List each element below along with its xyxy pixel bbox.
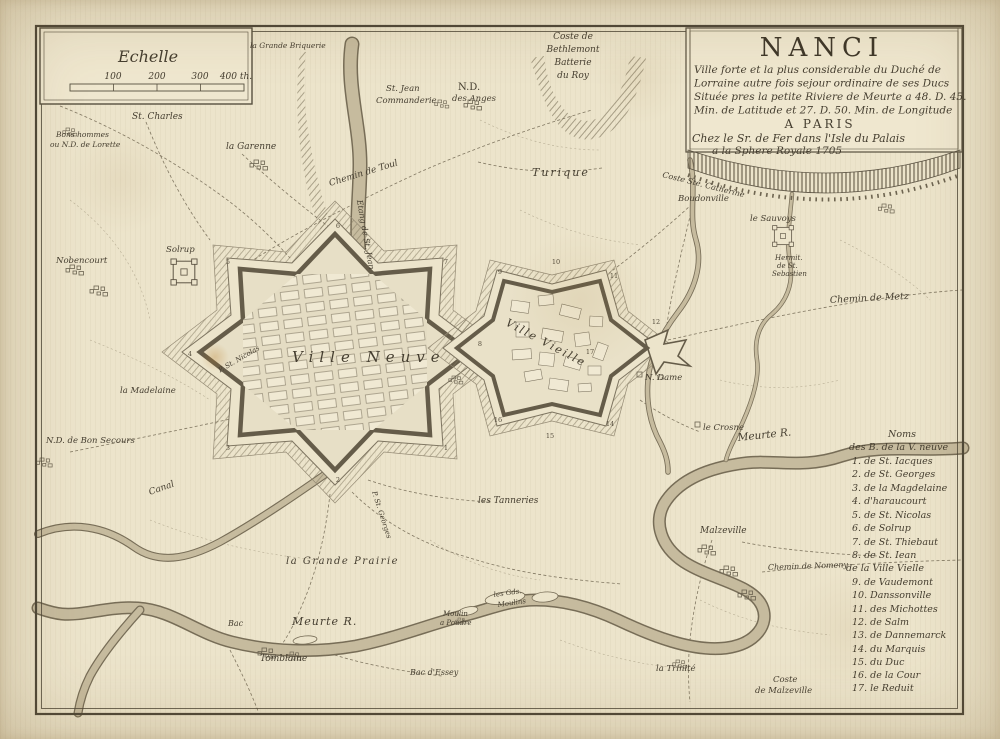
scale-tick-300: 300 [191,72,208,82]
label-malzeville: Malzeville [699,526,747,536]
scale-tick-100: 100 [104,72,121,82]
list-item: 12. de Salm [852,617,909,628]
list-item: 4. d'haraucourt [851,496,927,507]
list-item: 15. du Duc [852,657,905,668]
label-solrup: Solrup [166,245,195,255]
list-header-1: Noms [887,429,916,440]
bastion-number: 17 [586,348,594,356]
cartouche-date: a la Sphere Royale 1705 [712,145,842,157]
scale-tick-200: 200 [147,72,165,82]
fort-sauvoys [773,226,794,247]
label-tomblaine: Tomblaine [260,654,307,664]
bastion-number: 2 [336,476,340,484]
list-item: 3. de la Magdelaine [852,483,948,494]
label-coste-malzeville-1: Coste [773,675,797,685]
cartouche-line2: Lorraine autre fois sejour ordinaire de … [693,78,950,90]
label-ville-neuve: Ville Neuve [292,348,446,366]
label-moulin-poudre-2: a Poudre [440,619,472,627]
map-engraving: Echelle 100 200 300 400 th. NANCI Ville … [0,0,1000,739]
bastion-number: 1 [444,444,448,452]
cartouche-line3: Située pres la petite Riviere de Meurte … [694,91,966,103]
label-garenne: la Garenne [226,142,276,152]
bastion-number: 16 [494,416,502,424]
label-bonshommes-1: Bons hommes [55,130,109,139]
label-meurte-e: Meurte R. [736,426,792,444]
bastion-number: 6 [336,222,340,230]
bastion-number: 14 [606,420,614,428]
label-boudonville: Boudonville [677,194,729,204]
bastion-number: 10 [552,258,560,266]
list-item: 6. de Solrup [852,523,911,534]
label-madelaine: la Madelaine [120,386,176,396]
list-item: 9. de Vaudemont [852,577,933,588]
river-island [293,635,318,645]
label-coste-malzeville-2: de Malzeville [755,686,812,696]
bastion-number: 9 [498,268,502,276]
list-item: 7. de St. Thiebaut [852,537,938,548]
list-item: 16. de la Cour [852,670,922,681]
cartouche-line4: Min. de Latitude et 27. D. 50. Min. de L… [693,105,952,117]
label-st-charles: St. Charles [132,112,183,122]
label-bac: Bac [227,619,244,628]
label-grande-briquerie: la Grande Briquerie [250,41,326,50]
cartouche-imprint-city: A PARIS [783,117,855,131]
scale-title: Echelle [117,47,178,66]
label-bac-essey: Bac d'Essey [409,668,459,677]
map-title: NANCI [760,33,884,63]
list-item: 11. des Michottes [852,604,938,615]
crosne-chapel [695,422,700,427]
bastion-number: 12 [652,318,660,326]
bastion-number: 4 [188,350,192,358]
list-item: 14. du Marquis [852,644,926,655]
list-item: 1. de St. Iacques [852,456,933,467]
label-meurte-sw: Meurte R. [291,615,357,628]
bastion-number: 7 [444,258,448,266]
list-item: 17. le Reduit [852,683,914,694]
coste-bethlemont-hill [530,56,646,140]
label-bonshommes-2: ou N.D. de Lorette [50,140,121,149]
label-hermitage-3: Sebastien [772,270,807,278]
bastion-list: Noms des B. de la V. neuve 1. de St. Iac… [846,429,949,694]
label-st-jean-1: St. Jean [386,84,420,94]
list-item: 5. de St. Nicolas [852,510,931,521]
scale-tick-400: 400 th. [219,72,252,82]
drapery-fold-right [956,28,962,152]
bastion-number: 5 [226,258,230,266]
label-moulin-poudre-1: Moulin [442,610,468,618]
cartouche-line1: Ville forte et la plus considerable du D… [694,64,941,76]
label-grande-prairie: la Grande Prairie [286,556,399,567]
label-hermitage-2: de St. [777,262,798,270]
list-item: 8. de St. Iean [852,550,916,561]
label-tanneries: les Tanneries [478,496,539,506]
scale-cartouche: Echelle 100 200 300 400 th. [40,28,252,104]
label-bethlemont-4: du Roy [557,71,590,81]
title-cartouche: NANCI Ville forte et la plus considerabl… [686,28,966,200]
label-sauvoys: le Sauvoys [750,214,797,224]
bastion-number: 15 [546,432,554,440]
cartouche-publisher: Chez le Sr. de Fer dans l'Isle du Palais [692,132,905,145]
list-item: 13. de Dannemarck [852,630,947,641]
label-bethlemont-1: Coste de [553,32,593,42]
label-nd-anges-1: N.D. [458,82,480,93]
bastion-number: 3 [226,444,230,452]
list-header-2: des B. de la V. neuve [849,442,949,453]
label-trinite: la Trinité [656,663,696,674]
list-item: 10. Danssonville [852,590,932,601]
label-nd-anges-2: des Anges [452,94,497,104]
label-turique: Turique [532,166,590,179]
antique-map-nanci: Echelle 100 200 300 400 th. NANCI Ville … [0,0,1000,739]
label-bon-secours: N.D. de Bon Secours [45,436,135,446]
list-item: 2. de St. Georges [851,469,935,480]
fort-solrup [171,259,197,285]
label-nobencourt: Nobencourt [55,256,108,266]
label-chemin-nomeny: Chemin de Nomeny [768,560,849,572]
label-bethlemont-3: Batterie [553,58,591,68]
bastion-number: 8 [478,340,482,348]
bastion-number: 11 [610,272,618,280]
list-subheader: de la Ville Vielle [846,563,924,574]
label-bethlemont-2: Bethlemont [546,45,600,55]
label-porte-st-georges: P. St. Georges [370,489,393,540]
label-st-jean-2: Commanderie [376,96,437,106]
label-hermitage-1: Hermit. [774,254,803,262]
label-chemin-metz: Chemin de Metz [830,291,911,306]
label-canal: Canal [148,479,176,497]
bastion-number: 13 [656,374,664,382]
